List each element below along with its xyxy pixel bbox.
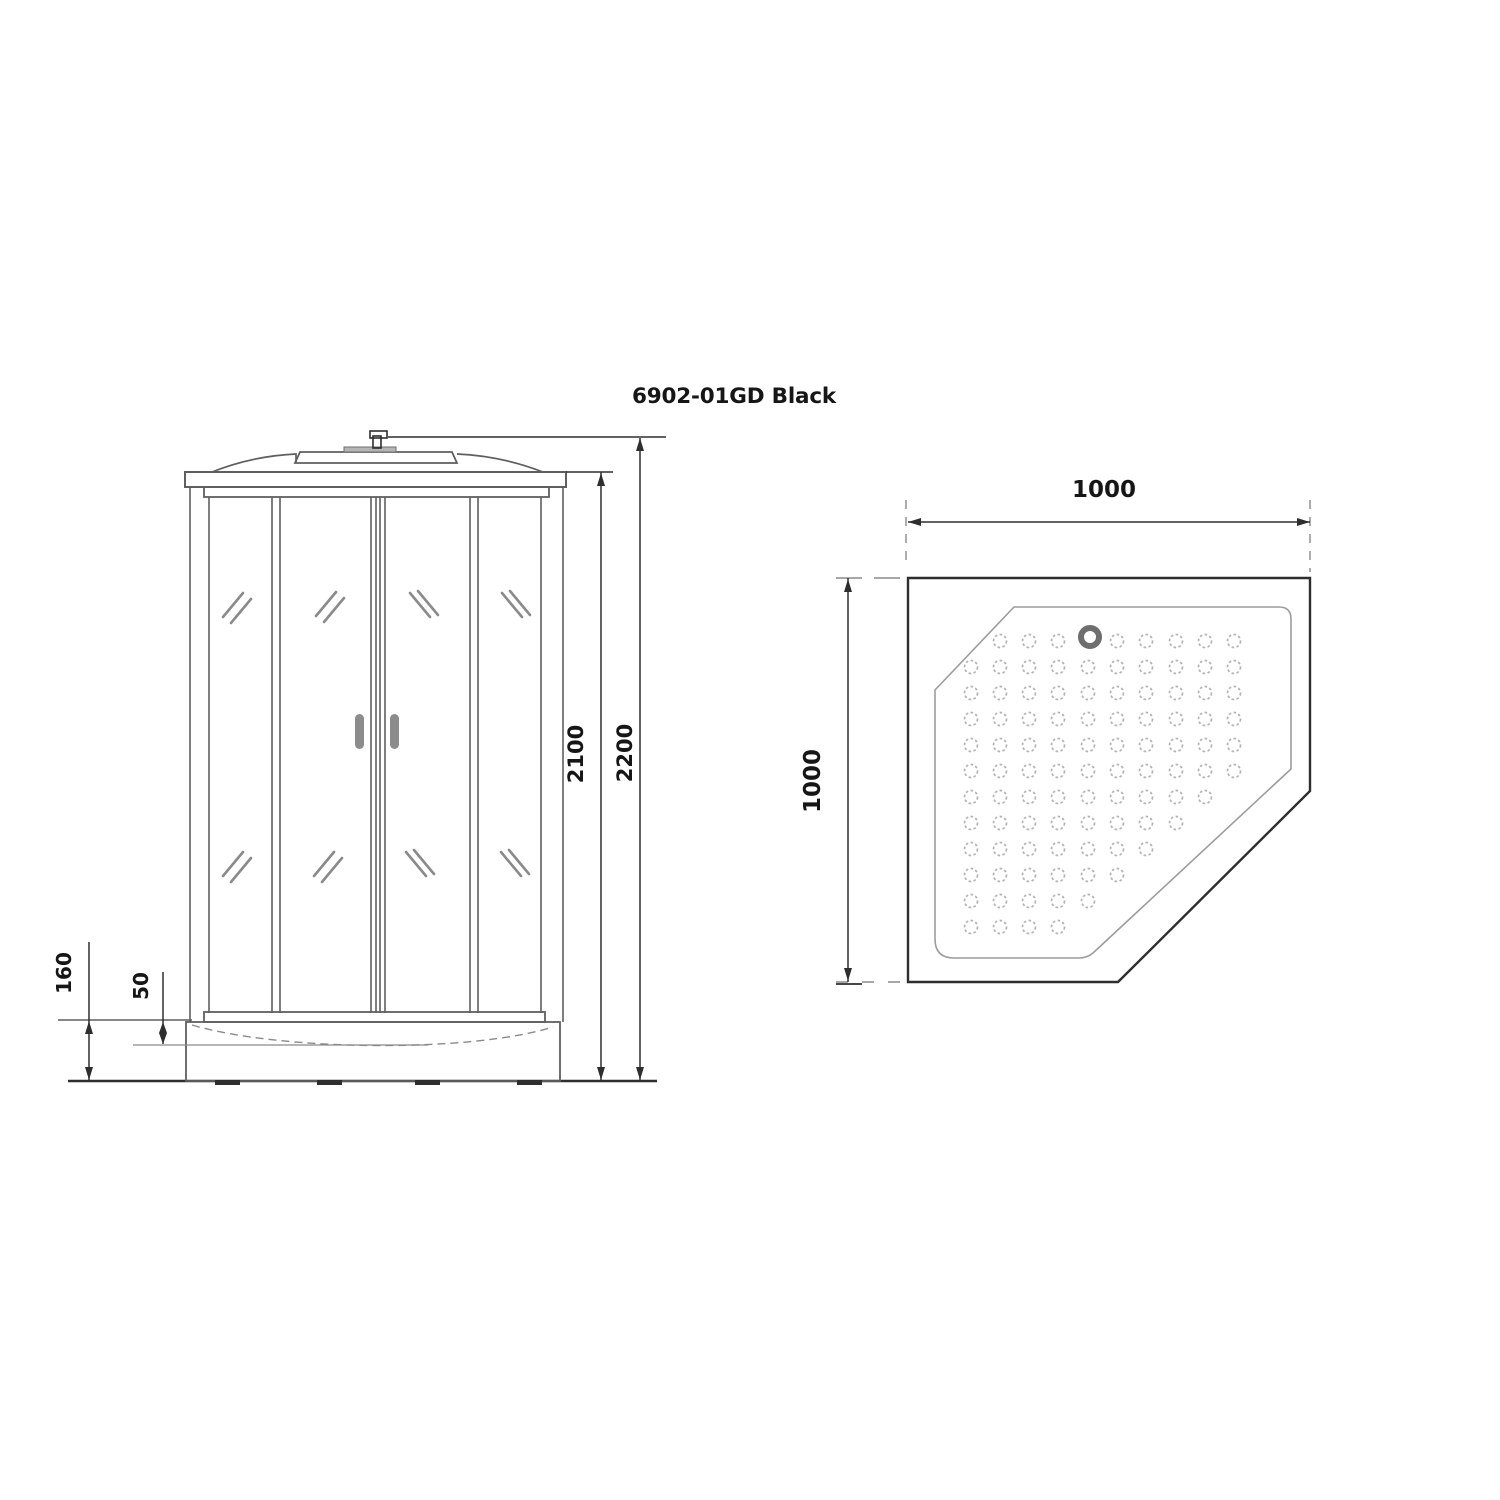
tray-texture-dot: [1111, 817, 1124, 830]
tray-texture-dot: [994, 869, 1007, 882]
tray-texture-dot: [1023, 635, 1036, 648]
arrow-up-icon: [85, 1021, 93, 1034]
tray-texture-dot: [1111, 869, 1124, 882]
tray-anti-slip-dots: [965, 635, 1241, 934]
tray-texture-dot: [1082, 791, 1095, 804]
drain-icon: [1081, 628, 1099, 646]
tray-texture-dot: [1199, 765, 1212, 778]
tray-texture-dot: [994, 661, 1007, 674]
arrow-down-icon: [597, 1067, 605, 1080]
tray-texture-dot: [1023, 661, 1036, 674]
tray-texture-dot: [965, 843, 978, 856]
tray-texture-dot: [1023, 713, 1036, 726]
roof-dome-left: [212, 454, 296, 472]
tray-texture-dot: [965, 869, 978, 882]
tray-foot: [317, 1080, 342, 1085]
tray-texture-dot: [994, 921, 1007, 934]
tray-plan-view: 1000 1000: [800, 477, 1310, 984]
dim-label-2100: 2100: [564, 725, 588, 783]
arrow-down-icon: [844, 968, 852, 981]
door-handle-left: [355, 714, 364, 749]
tray-texture-dot: [1228, 713, 1241, 726]
tray-texture-dot: [1111, 661, 1124, 674]
tray-texture-dot: [994, 635, 1007, 648]
tray-texture-dot: [994, 687, 1007, 700]
tray-texture-dot: [1052, 843, 1065, 856]
tray-texture-dot: [994, 843, 1007, 856]
tray-texture-dot: [1082, 895, 1095, 908]
dimension-tray-height: 160: [52, 942, 192, 1081]
tray-foot: [215, 1080, 240, 1085]
tray-texture-dot: [1023, 739, 1036, 752]
tray-texture-dot: [1023, 817, 1036, 830]
tray-texture-dot: [1052, 921, 1065, 934]
arrow-down-icon: [159, 1033, 167, 1044]
tray-texture-dot: [1082, 843, 1095, 856]
tray-texture-dot: [1052, 895, 1065, 908]
arrow-down-icon: [85, 1067, 93, 1080]
tray-texture-dot: [1199, 687, 1212, 700]
tray-texture-dot: [1082, 817, 1095, 830]
tray-texture-dot: [1170, 791, 1183, 804]
tray-texture-dot: [1111, 791, 1124, 804]
tray-texture-dot: [1199, 739, 1212, 752]
tray-texture-dot: [1052, 687, 1065, 700]
tray-texture-dot: [994, 739, 1007, 752]
tray-texture-dot: [1170, 817, 1183, 830]
arrow-up-icon: [159, 1022, 167, 1033]
tray-texture-dot: [965, 739, 978, 752]
tray-texture-dot: [1170, 713, 1183, 726]
tray-texture-dot: [1023, 921, 1036, 934]
arrow-left-icon: [908, 518, 921, 526]
door-handle-right: [390, 714, 399, 749]
roof-assembly: [185, 431, 566, 497]
tray-texture-dot: [1140, 791, 1153, 804]
tray-texture-dot: [1052, 869, 1065, 882]
tray-outline: [186, 1022, 560, 1081]
tray-texture-dot: [1228, 661, 1241, 674]
tray-base: [186, 1022, 560, 1085]
tray-foot: [415, 1080, 440, 1085]
tray-texture-dot: [965, 921, 978, 934]
dimension-overall-height: 2200: [388, 437, 666, 1081]
tray-texture-dot: [1111, 765, 1124, 778]
tray-texture-dot: [1052, 635, 1065, 648]
tray-texture-dot: [1140, 739, 1153, 752]
tray-texture-dot: [1111, 635, 1124, 648]
tray-texture-dot: [1140, 713, 1153, 726]
glass-shine-icon: [223, 852, 251, 882]
tray-inner-outline: [935, 607, 1291, 958]
tray-texture-dot: [994, 895, 1007, 908]
tray-texture-dot: [1082, 687, 1095, 700]
tray-texture-dot: [1111, 843, 1124, 856]
tray-texture-dot: [1082, 661, 1095, 674]
dim-label-50: 50: [129, 972, 153, 1000]
cabin-frame: [190, 487, 563, 1022]
roof-rim-bar: [185, 472, 566, 487]
tray-texture-dot: [1052, 739, 1065, 752]
tray-texture-dot: [965, 895, 978, 908]
tray-texture-dot: [1082, 869, 1095, 882]
glass-shine-icon: [223, 593, 251, 623]
tray-texture-dot: [994, 817, 1007, 830]
tray-apron-curve: [192, 1025, 553, 1046]
tray-texture-dot: [1052, 791, 1065, 804]
tray-texture-dot: [1111, 687, 1124, 700]
tray-foot: [517, 1080, 542, 1085]
tray-texture-dot: [965, 661, 978, 674]
tray-texture-dot: [1111, 739, 1124, 752]
arrow-up-icon: [636, 438, 644, 451]
tray-texture-dot: [1199, 713, 1212, 726]
glass-shine-icon: [406, 850, 434, 876]
model-title: 6902-01GD Black: [632, 384, 837, 409]
tray-texture-dot: [1170, 765, 1183, 778]
tray-texture-dot: [994, 765, 1007, 778]
dimension-tray-depth: 1000: [800, 578, 900, 984]
bottom-rail: [204, 1012, 545, 1022]
tray-texture-dot: [1170, 687, 1183, 700]
tray-texture-dot: [1199, 661, 1212, 674]
tray-texture-dot: [965, 817, 978, 830]
front-elevation-view: 2100 2200 160 50: [52, 431, 666, 1085]
arrow-down-icon: [636, 1067, 644, 1080]
tray-texture-dot: [1228, 635, 1241, 648]
glass-shine-icon: [316, 592, 344, 622]
tray-texture-dot: [1023, 791, 1036, 804]
tray-texture-dot: [1140, 843, 1153, 856]
tray-texture-dot: [1170, 635, 1183, 648]
tray-texture-dot: [1140, 817, 1153, 830]
dimension-tray-step: 50: [129, 972, 428, 1045]
tray-texture-dot: [1023, 843, 1036, 856]
tray-texture-dot: [1082, 765, 1095, 778]
dimension-tray-width: 1000: [906, 477, 1310, 572]
tray-texture-dot: [965, 687, 978, 700]
arrow-up-icon: [597, 473, 605, 486]
tray-texture-dot: [1082, 739, 1095, 752]
shower-head-icon: [344, 431, 396, 452]
roof-step-rim: [204, 487, 549, 497]
tray-texture-dot: [1140, 687, 1153, 700]
glass-shine-icon: [502, 591, 530, 617]
tray-texture-dot: [965, 765, 978, 778]
tray-texture-dot: [1052, 713, 1065, 726]
tray-texture-dot: [965, 713, 978, 726]
tray-texture-dot: [1111, 713, 1124, 726]
tray-texture-dot: [1052, 661, 1065, 674]
tray-texture-dot: [1140, 765, 1153, 778]
drawing-page: 6902-01GD Black: [0, 0, 1500, 1500]
tray-texture-dot: [994, 713, 1007, 726]
tray-texture-dot: [1199, 635, 1212, 648]
glass-shine-icon: [501, 850, 529, 876]
tray-texture-dot: [965, 791, 978, 804]
arrow-up-icon: [844, 579, 852, 592]
tray-texture-dot: [1199, 791, 1212, 804]
tray-texture-dot: [1023, 869, 1036, 882]
roof-dome-right: [457, 454, 543, 472]
tray-texture-dot: [1228, 765, 1241, 778]
dimension-cabin-height: 2100: [564, 472, 613, 1081]
dim-label-width-1000: 1000: [1072, 477, 1136, 503]
tray-texture-dot: [1140, 661, 1153, 674]
door-handles: [355, 714, 399, 749]
tray-texture-dot: [1170, 661, 1183, 674]
tray-texture-dot: [1082, 713, 1095, 726]
arrow-right-icon: [1297, 518, 1310, 526]
tray-texture-dot: [1023, 687, 1036, 700]
tray-texture-dot: [1228, 687, 1241, 700]
dim-label-2200: 2200: [613, 724, 637, 782]
tray-texture-dot: [1052, 817, 1065, 830]
tray-texture-dot: [1023, 895, 1036, 908]
dim-label-depth-1000: 1000: [800, 749, 826, 813]
tray-texture-dot: [994, 791, 1007, 804]
tray-texture-dot: [1170, 739, 1183, 752]
technical-drawing-canvas: 6902-01GD Black: [0, 0, 1500, 1500]
glass-shine-icon: [410, 591, 438, 617]
fixture-plate: [344, 447, 396, 452]
tray-texture-dot: [1052, 765, 1065, 778]
tray-texture-dot: [1023, 765, 1036, 778]
tray-texture-dot: [1228, 739, 1241, 752]
tray-texture-dot: [1140, 635, 1153, 648]
roof-vent-box: [295, 452, 457, 463]
glass-shine-icon: [314, 852, 342, 882]
dim-label-160: 160: [52, 952, 76, 994]
